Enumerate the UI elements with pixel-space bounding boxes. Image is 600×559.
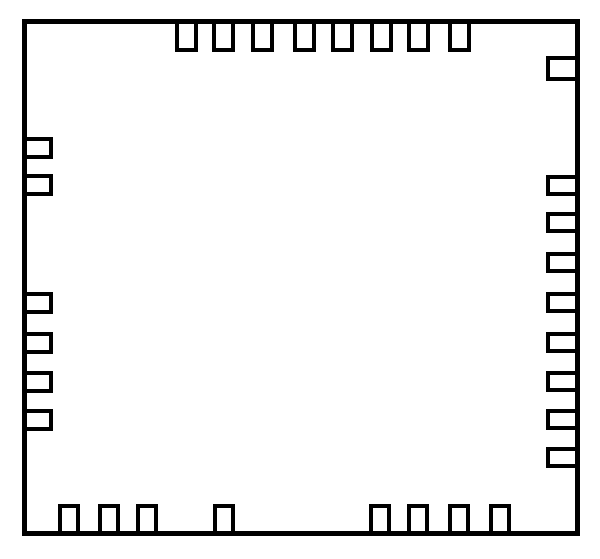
pin-left-6: [27, 409, 53, 431]
pin-top-7: [407, 24, 430, 52]
pin-right-9: [546, 447, 575, 468]
pin-right-1: [546, 56, 575, 81]
pin-top-2: [212, 24, 235, 52]
pin-bottom-2: [98, 504, 120, 531]
pin-right-3: [546, 212, 575, 233]
pin-top-4: [293, 24, 316, 52]
pin-top-6: [370, 24, 393, 52]
pin-right-8: [546, 409, 575, 430]
pin-right-5: [546, 292, 575, 313]
pin-top-1: [175, 24, 198, 52]
pin-bottom-8: [489, 504, 511, 531]
pin-bottom-6: [407, 504, 429, 531]
pin-bottom-3: [136, 504, 158, 531]
pin-right-2: [546, 175, 575, 196]
package-body: [22, 19, 580, 536]
pin-bottom-4: [213, 504, 235, 531]
pin-bottom-5: [369, 504, 391, 531]
pin-right-7: [546, 371, 575, 392]
pin-left-3: [27, 292, 53, 314]
pin-left-4: [27, 332, 53, 354]
pin-top-5: [331, 24, 354, 52]
pin-left-2: [27, 174, 53, 196]
pin-bottom-7: [448, 504, 470, 531]
pin-bottom-1: [58, 504, 80, 531]
pin-top-8: [448, 24, 471, 52]
pin-left-5: [27, 371, 53, 393]
pin-right-4: [546, 252, 575, 273]
package-outline-diagram: [0, 0, 600, 559]
pin-left-1: [27, 137, 53, 159]
pin-right-6: [546, 332, 575, 353]
pin-top-3: [251, 24, 274, 52]
